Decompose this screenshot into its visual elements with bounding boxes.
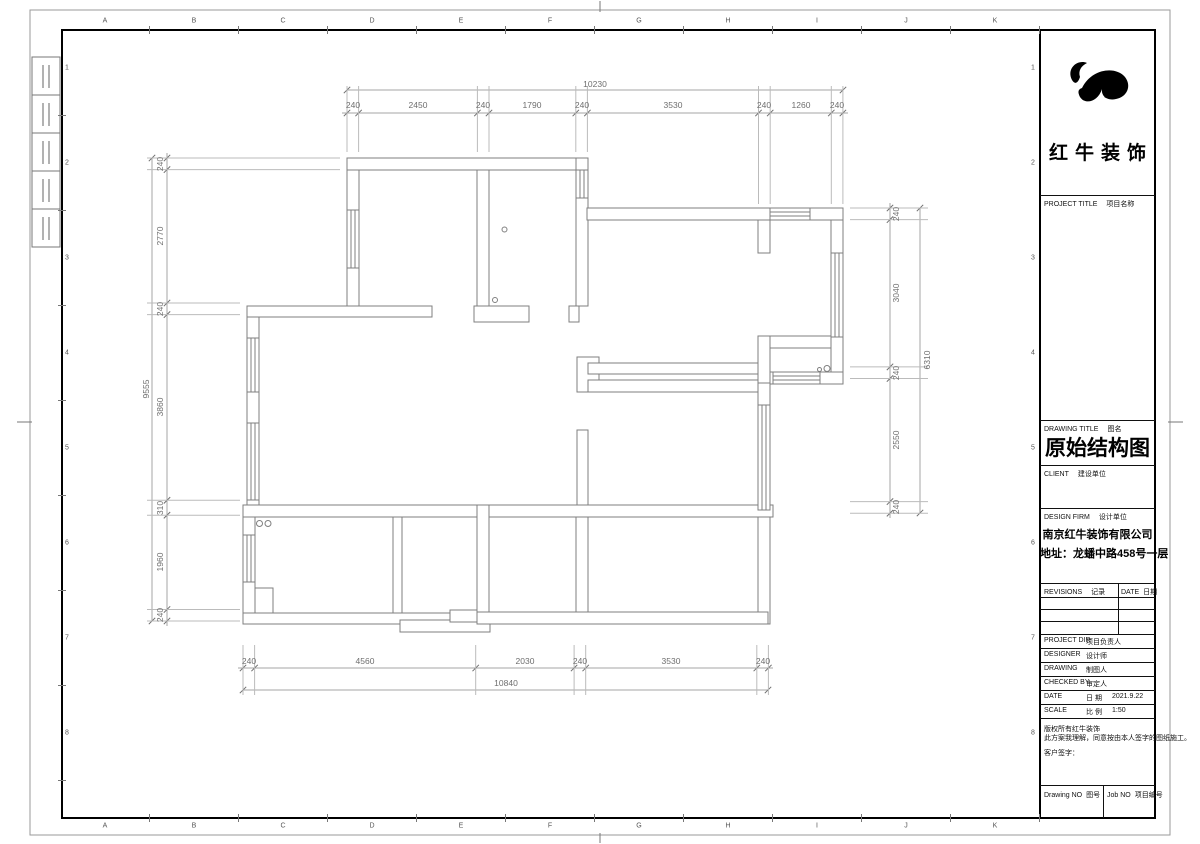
dimension-segment-label: 2550 bbox=[891, 431, 901, 450]
row-line bbox=[1040, 704, 1155, 705]
window bbox=[247, 338, 259, 392]
border-grid-label: B bbox=[192, 823, 197, 830]
drawing-cn: 制图人 bbox=[1086, 665, 1107, 675]
border-grid-label: 3 bbox=[1031, 255, 1035, 262]
dimension-segment-label: 2030 bbox=[516, 656, 535, 666]
revision-row-line bbox=[1040, 597, 1155, 598]
project-dir-row: PROJECT DIR bbox=[1044, 637, 1091, 644]
border-grid-label: 8 bbox=[65, 730, 69, 737]
dimension-segment-label: 240 bbox=[891, 366, 901, 380]
border-grid-label: E bbox=[459, 823, 464, 830]
dimension-segment-label: 1960 bbox=[155, 553, 165, 572]
designer-label: DESIGNER bbox=[1044, 651, 1081, 658]
border-grid-label: 5 bbox=[65, 445, 69, 452]
firm-name: 南京红牛装饰有限公司 bbox=[1040, 526, 1155, 542]
dimension-segment-label: 240 bbox=[757, 100, 771, 110]
drawing-sheet: 10230 10840 9555 6310 240245024017902403… bbox=[0, 0, 1200, 844]
designer-cn: 设计师 bbox=[1086, 651, 1107, 661]
border-grid-label: 7 bbox=[1031, 635, 1035, 642]
dimension-segment-label: 4560 bbox=[356, 656, 375, 666]
border-grid-label: 7 bbox=[65, 635, 69, 642]
border-grid-label: H bbox=[725, 823, 730, 830]
design-firm-row: DESIGN FIRM设计单位 bbox=[1044, 512, 1127, 522]
client-row: CLIENT建设单位 bbox=[1044, 469, 1106, 479]
border-grid-label: K bbox=[993, 823, 998, 830]
dimension-segment-label: 240 bbox=[155, 608, 165, 622]
border-grid-label: B bbox=[192, 18, 197, 25]
border-grid-label: 4 bbox=[65, 350, 69, 357]
window bbox=[243, 535, 255, 582]
checked-by-label: CHECKED BY bbox=[1044, 679, 1090, 686]
window bbox=[770, 208, 810, 220]
row-line bbox=[1040, 676, 1155, 677]
revisions-header: REVISIONS记录 bbox=[1044, 587, 1105, 597]
border-grid-label: G bbox=[636, 18, 641, 25]
divider bbox=[1040, 785, 1155, 786]
company-logo bbox=[1058, 52, 1138, 130]
window bbox=[247, 423, 259, 500]
border-grid-label: 8 bbox=[1031, 730, 1035, 737]
border-grid-label: C bbox=[280, 823, 285, 830]
project-title-label-cn: 项目名称 bbox=[1106, 201, 1134, 208]
window bbox=[347, 210, 359, 268]
dimension-segment-label: 240 bbox=[242, 656, 256, 666]
window bbox=[831, 253, 843, 337]
revision-row-line bbox=[1040, 621, 1155, 622]
border-grid-label: I bbox=[816, 823, 818, 830]
dimension-segment-label: 240 bbox=[155, 302, 165, 316]
job-no-row: Job NO项目编号 bbox=[1107, 790, 1163, 800]
dimension-segment-label: 3530 bbox=[662, 656, 681, 666]
job-no-label: Job NO bbox=[1107, 792, 1131, 799]
border-grid-label: H bbox=[725, 18, 730, 25]
project-dir-cn: 项目负责人 bbox=[1086, 637, 1121, 647]
border-grid-label: F bbox=[548, 18, 552, 25]
date-row-label: DATE bbox=[1044, 693, 1062, 700]
border-grid-label: 3 bbox=[65, 255, 69, 262]
date-header-label: DATE bbox=[1121, 589, 1139, 596]
border-grid-label: F bbox=[548, 823, 552, 830]
revision-row-line bbox=[1040, 609, 1155, 610]
copyright-line2: 此方案我理解，同意按由本人签字的图纸施工。 bbox=[1044, 733, 1191, 743]
drawing-no-label: Drawing NO bbox=[1044, 792, 1082, 799]
dimension-segment-label: 3040 bbox=[891, 284, 901, 303]
sheet-borders bbox=[17, 1, 1183, 843]
scale-cn: 比 例 bbox=[1086, 707, 1102, 717]
windows bbox=[243, 170, 843, 582]
window bbox=[773, 372, 820, 384]
dimension-total-right: 6310 bbox=[922, 351, 932, 370]
row-line bbox=[1040, 648, 1155, 649]
border-grid-label: C bbox=[280, 18, 285, 25]
border-grid-label: 2 bbox=[1031, 160, 1035, 167]
divider bbox=[1040, 508, 1155, 509]
row-line bbox=[1040, 662, 1155, 663]
drawing-label: DRAWING bbox=[1044, 665, 1078, 672]
window bbox=[758, 405, 770, 510]
design-firm-label-cn: 设计单位 bbox=[1099, 514, 1127, 521]
dimension-total-left: 9555 bbox=[141, 380, 151, 399]
date-row-cn: 日 期 bbox=[1086, 693, 1102, 703]
dimension-segment-label: 1790 bbox=[523, 100, 542, 110]
fixture-circles bbox=[257, 227, 831, 527]
divider bbox=[1040, 420, 1155, 421]
border-grid-label: D bbox=[369, 18, 374, 25]
border-grid-label: 1 bbox=[65, 65, 69, 72]
divider bbox=[1040, 583, 1155, 584]
date-header: DATE日期 bbox=[1121, 587, 1157, 597]
dimension-segment-label: 240 bbox=[575, 100, 589, 110]
dimension-segment-label: 240 bbox=[891, 500, 901, 514]
border-grid-label: J bbox=[904, 823, 908, 830]
row-line bbox=[1040, 718, 1155, 719]
drawing-title: 原始结构图 bbox=[1040, 432, 1155, 462]
border-grid-label: A bbox=[103, 18, 108, 25]
revisions-label-cn: 记录 bbox=[1091, 589, 1105, 596]
dimension-segment-label: 310 bbox=[155, 501, 165, 515]
scale-value: 1:50 bbox=[1112, 707, 1126, 714]
dimension-segment-label: 3860 bbox=[155, 398, 165, 417]
dimension-segment-label: 240 bbox=[573, 656, 587, 666]
drawing-no-label-cn: 图号 bbox=[1086, 792, 1100, 799]
client-label: CLIENT bbox=[1044, 471, 1069, 478]
floor-plan-svg bbox=[0, 0, 1200, 844]
border-grid-label: 6 bbox=[1031, 540, 1035, 547]
dimension-segment-label: 3530 bbox=[664, 100, 683, 110]
firm-address: 地址：龙蟠中路458号一层 bbox=[1040, 545, 1155, 561]
revisions-label: REVISIONS bbox=[1044, 589, 1082, 596]
date-header-label-cn: 日期 bbox=[1143, 589, 1157, 596]
bottom-row-divider bbox=[1103, 785, 1104, 818]
window bbox=[576, 170, 588, 198]
border-grid-label: 5 bbox=[1031, 445, 1035, 452]
design-firm-label: DESIGN FIRM bbox=[1044, 514, 1090, 521]
dimension-segment-label: 240 bbox=[830, 100, 844, 110]
checked-by-cn: 审定人 bbox=[1086, 679, 1107, 689]
dimension-segment-label: 2450 bbox=[409, 100, 428, 110]
border-grid-label: G bbox=[636, 823, 641, 830]
border-grid-label: 2 bbox=[65, 160, 69, 167]
border-grid-label: I bbox=[816, 18, 818, 25]
job-no-label-cn: 项目编号 bbox=[1135, 792, 1163, 799]
border-grid-label: 1 bbox=[1031, 65, 1035, 72]
row-line bbox=[1040, 690, 1155, 691]
drawing-no-row: Drawing NO图号 bbox=[1044, 790, 1100, 800]
border-grid-label: 6 bbox=[65, 540, 69, 547]
company-name: 红牛装饰 bbox=[1040, 138, 1155, 165]
dimension-segment-label: 2770 bbox=[155, 227, 165, 246]
dimension-lines bbox=[58, 26, 1040, 822]
dimension-total-top: 10230 bbox=[583, 79, 607, 89]
project-title-label: PROJECT TITLE bbox=[1044, 201, 1097, 208]
dimension-segment-label: 1260 bbox=[792, 100, 811, 110]
project-dir-label: PROJECT DIR bbox=[1044, 637, 1091, 644]
dimension-segment-label: 240 bbox=[346, 100, 360, 110]
date-value: 2021.9.22 bbox=[1112, 693, 1143, 700]
client-label-cn: 建设单位 bbox=[1078, 471, 1106, 478]
dimension-segment-label: 240 bbox=[155, 157, 165, 171]
divider bbox=[1040, 195, 1155, 196]
dimension-segment-label: 240 bbox=[756, 656, 770, 666]
border-grid-label: J bbox=[904, 18, 908, 25]
border-grid-label: D bbox=[369, 823, 374, 830]
border-grid-label: K bbox=[993, 18, 998, 25]
customer-sign-label: 客户签字： bbox=[1044, 748, 1079, 758]
scale-label: SCALE bbox=[1044, 707, 1067, 714]
divider bbox=[1040, 465, 1155, 466]
border-grid-label: E bbox=[459, 18, 464, 25]
border-grid-label: A bbox=[103, 823, 108, 830]
dimension-total-bottom: 10840 bbox=[494, 678, 518, 688]
left-signature-strip bbox=[32, 57, 60, 247]
border-grid-label: 4 bbox=[1031, 350, 1035, 357]
project-title-row: PROJECT TITLE项目名称 bbox=[1044, 199, 1134, 209]
dimension-segment-label: 240 bbox=[891, 207, 901, 221]
dimension-segment-label: 240 bbox=[476, 100, 490, 110]
walls bbox=[243, 158, 843, 632]
row-line bbox=[1040, 634, 1155, 635]
